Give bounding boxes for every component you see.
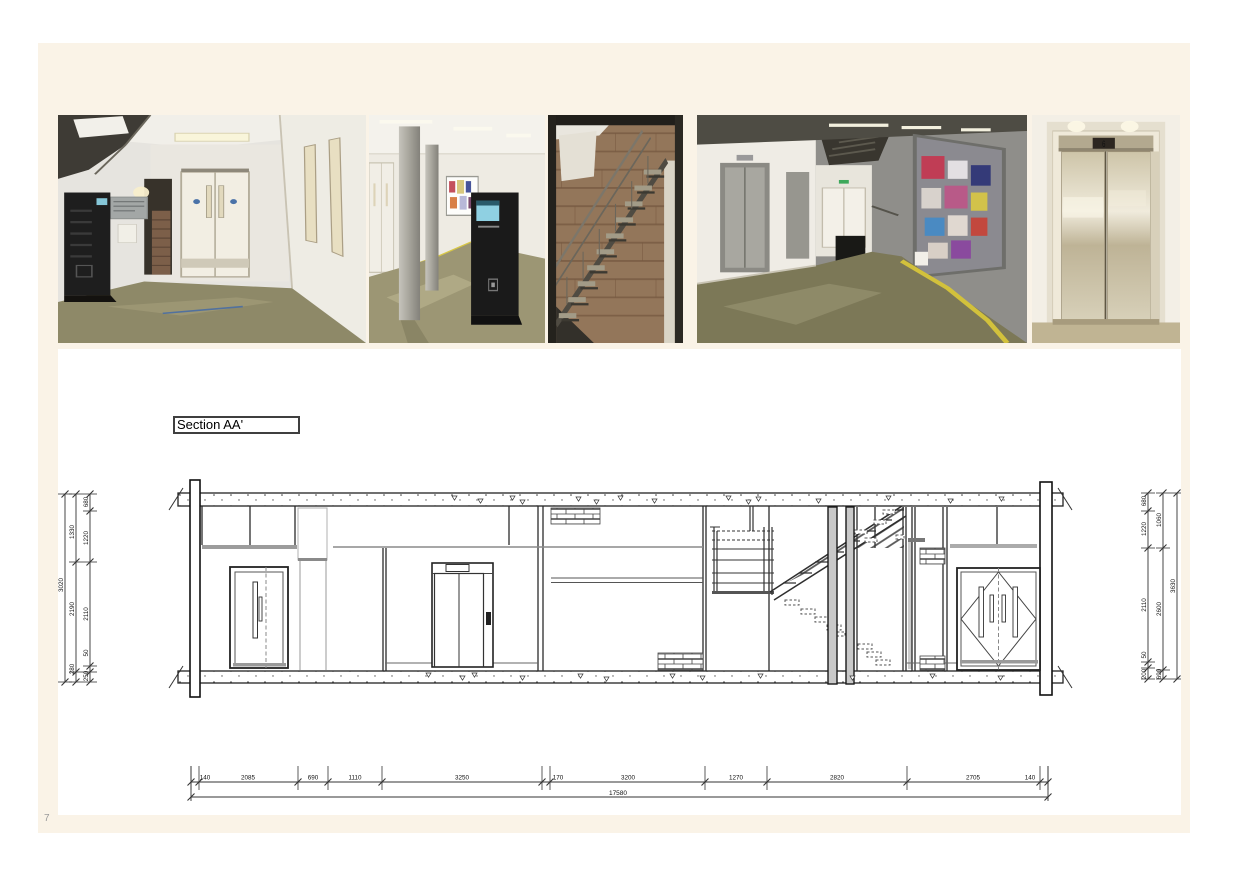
staircase-section [770, 505, 906, 684]
photo-lift-doors: 6 [1032, 115, 1180, 343]
dim-label: 3020 [58, 578, 65, 593]
photo-corridor-doors [58, 115, 366, 343]
dim-label: 1330 [69, 525, 76, 540]
dim-label: 280 [69, 663, 76, 674]
dim-label: 1060 [1156, 513, 1163, 528]
bottom-dimension-labels: 140 2085 690 1110 3250 170 3200 1270 282… [200, 775, 1036, 798]
photo-1-art [58, 115, 366, 343]
photo-corridor-lift [697, 115, 1027, 343]
dim-label: 680 [1141, 495, 1148, 506]
left-double-door [230, 567, 288, 668]
photo-corridor-columns [369, 115, 545, 343]
dim-label: 1270 [729, 775, 744, 782]
dim-label: 2110 [83, 607, 90, 621]
lift-elevation [432, 563, 493, 667]
stair-landing-railing [710, 506, 774, 595]
lift-floor-indicator: 6 [1102, 139, 1105, 150]
dim-label-total: 17580 [609, 790, 627, 797]
dim-label: 680 [83, 496, 90, 507]
dim-label: 1110 [348, 775, 362, 782]
photo-2-art [369, 115, 545, 343]
photo-4-art [697, 115, 1027, 343]
document-page: { "page": { "number": "7" }, "section_la… [0, 0, 1241, 877]
section-title: Section AA' [173, 416, 300, 434]
dim-label: 140 [1025, 775, 1036, 782]
dim-label: 2600 [1156, 602, 1163, 617]
dim-label: 50 [1141, 651, 1148, 659]
dim-label: 3200 [621, 775, 636, 782]
photo-staircase-brick [548, 115, 683, 343]
dim-label: 2190 [69, 602, 76, 617]
dim-label: 2085 [241, 775, 256, 782]
right-double-door [957, 568, 1040, 670]
dim-label: 3250 [455, 775, 470, 782]
photo-5-art: 6 [1032, 115, 1180, 343]
dim-label: 140 [200, 775, 211, 782]
dim-label: 250 [83, 670, 90, 681]
dim-label: 200 [1141, 668, 1148, 679]
dim-label: 50 [83, 649, 90, 657]
page-number: 7 [44, 813, 50, 824]
dim-label: 2820 [830, 775, 845, 782]
dim-label: 2705 [966, 775, 981, 782]
dim-label: 1220 [1141, 522, 1148, 537]
dim-label: 2110 [1141, 598, 1148, 612]
dim-label: 170 [553, 775, 564, 782]
dim-label: 1220 [83, 531, 90, 546]
walls [202, 506, 1037, 671]
photo-3-art [548, 115, 683, 343]
dim-label: 3630 [1170, 579, 1177, 594]
dim-label: 690 [308, 775, 319, 782]
dim-label: 690 [1156, 668, 1163, 679]
